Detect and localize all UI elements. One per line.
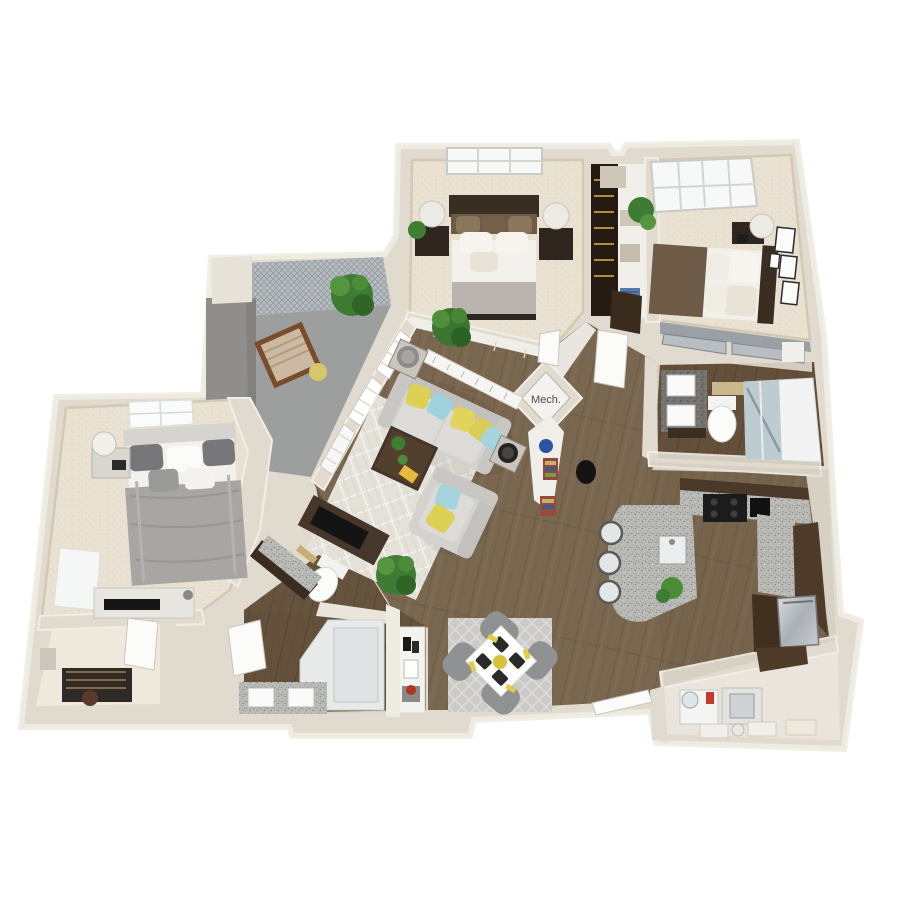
svg-text:Mech.: Mech. <box>531 394 561 406</box>
